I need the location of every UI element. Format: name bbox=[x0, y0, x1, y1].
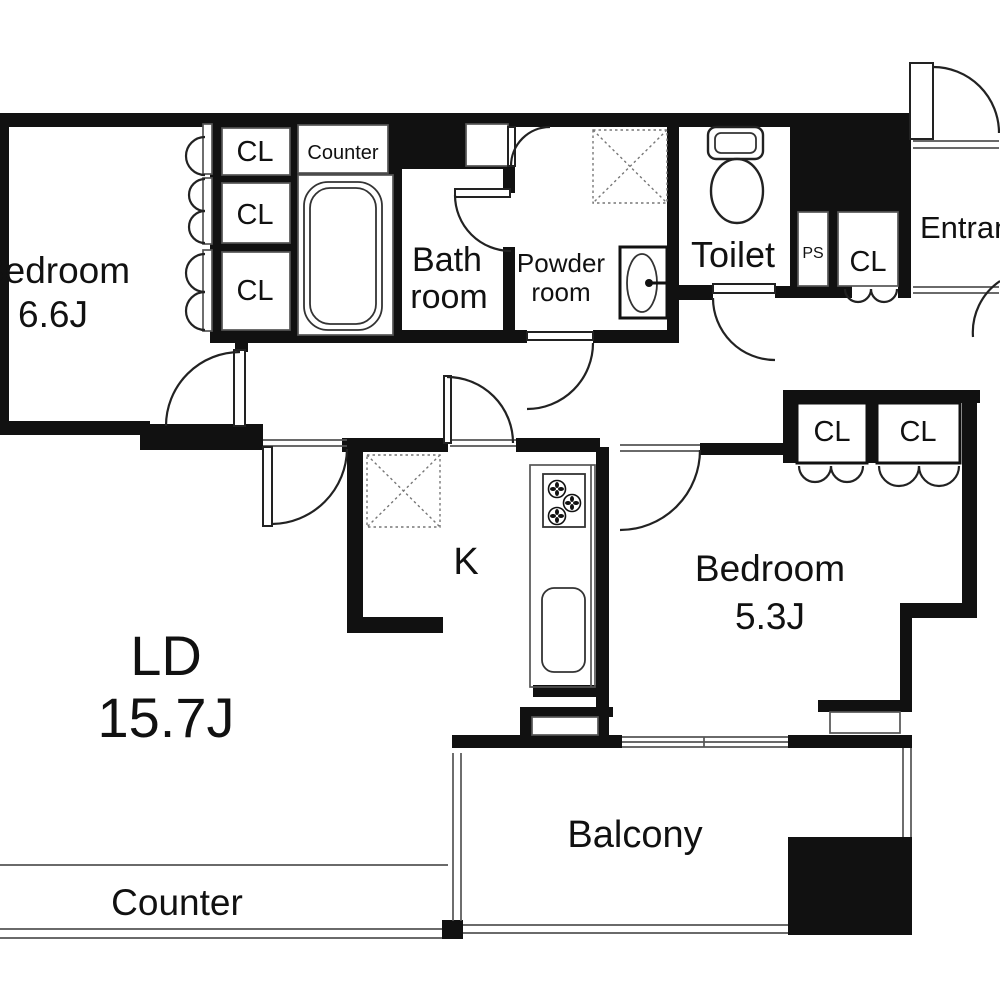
balcony-label: Balcony bbox=[567, 814, 702, 856]
powder-room-label-1: Powder bbox=[517, 248, 605, 278]
closet-folding-doors-bedroom2 bbox=[799, 466, 959, 486]
closet-folding-doors-entrance bbox=[845, 289, 897, 302]
bedroom2-window-notch bbox=[830, 712, 900, 733]
bedroom2-door bbox=[620, 450, 700, 530]
balcony-sliding-door bbox=[622, 735, 788, 748]
toilet-label: Toilet bbox=[691, 234, 775, 275]
bedroom1-label: Bedroom bbox=[0, 250, 130, 291]
bathroom-label-1: Bath bbox=[412, 241, 482, 279]
closet2-label: CL bbox=[236, 199, 273, 231]
closet5-label: CL bbox=[899, 416, 936, 448]
kitchen-sink-icon bbox=[542, 588, 585, 672]
closet-folding-doors-bedroom1 bbox=[186, 137, 205, 330]
entrance-door bbox=[910, 63, 999, 139]
ld-door bbox=[263, 447, 347, 526]
bath-window bbox=[466, 124, 508, 166]
closet4-label: CL bbox=[813, 416, 850, 448]
ld-label: LD bbox=[130, 624, 202, 687]
bathtub-icon bbox=[304, 182, 382, 330]
walls bbox=[0, 113, 980, 939]
bath-counter-label: Counter bbox=[307, 142, 378, 164]
bedroom2-size: 5.3J bbox=[735, 596, 805, 637]
ld-counter-label: Counter bbox=[111, 882, 243, 923]
toilet-door bbox=[713, 284, 775, 360]
entrance-side-door bbox=[973, 281, 1000, 337]
powder-room-door bbox=[527, 332, 593, 409]
closet1-label: CL bbox=[236, 136, 273, 168]
entrance-closet-label: CL bbox=[849, 246, 886, 278]
labels: Bedroom 6.6J CL CL CL Counter Bath room … bbox=[0, 136, 1000, 923]
sink-icon bbox=[620, 247, 667, 318]
closet3-label: CL bbox=[236, 275, 273, 307]
floor-plan: Bedroom 6.6J CL CL CL Counter Bath room … bbox=[0, 0, 1000, 1000]
powder-room-label-2: room bbox=[531, 277, 590, 307]
powder-room-upper-door bbox=[508, 127, 550, 166]
bathroom-label-2: room bbox=[410, 278, 487, 316]
fixtures bbox=[304, 127, 763, 672]
entrance-label: Entrance bbox=[920, 210, 1000, 245]
floor-plan-canvas: Bedroom 6.6J CL CL CL Counter Bath room … bbox=[0, 0, 1000, 1000]
kitchen-door bbox=[444, 376, 513, 443]
ld-size: 15.7J bbox=[98, 686, 235, 749]
bedroom1-door bbox=[166, 350, 245, 426]
washer-space-icon bbox=[593, 130, 667, 203]
bedroom1-size: 6.6J bbox=[18, 294, 88, 335]
bedroom2-label: Bedroom bbox=[695, 548, 845, 589]
ld-window-notch bbox=[532, 717, 598, 735]
fridge-space-icon bbox=[367, 455, 440, 527]
stove-icon bbox=[543, 474, 585, 527]
toilet-icon bbox=[708, 127, 763, 223]
pipe-space-label: PS bbox=[802, 245, 823, 262]
kitchen-label: K bbox=[453, 541, 478, 583]
